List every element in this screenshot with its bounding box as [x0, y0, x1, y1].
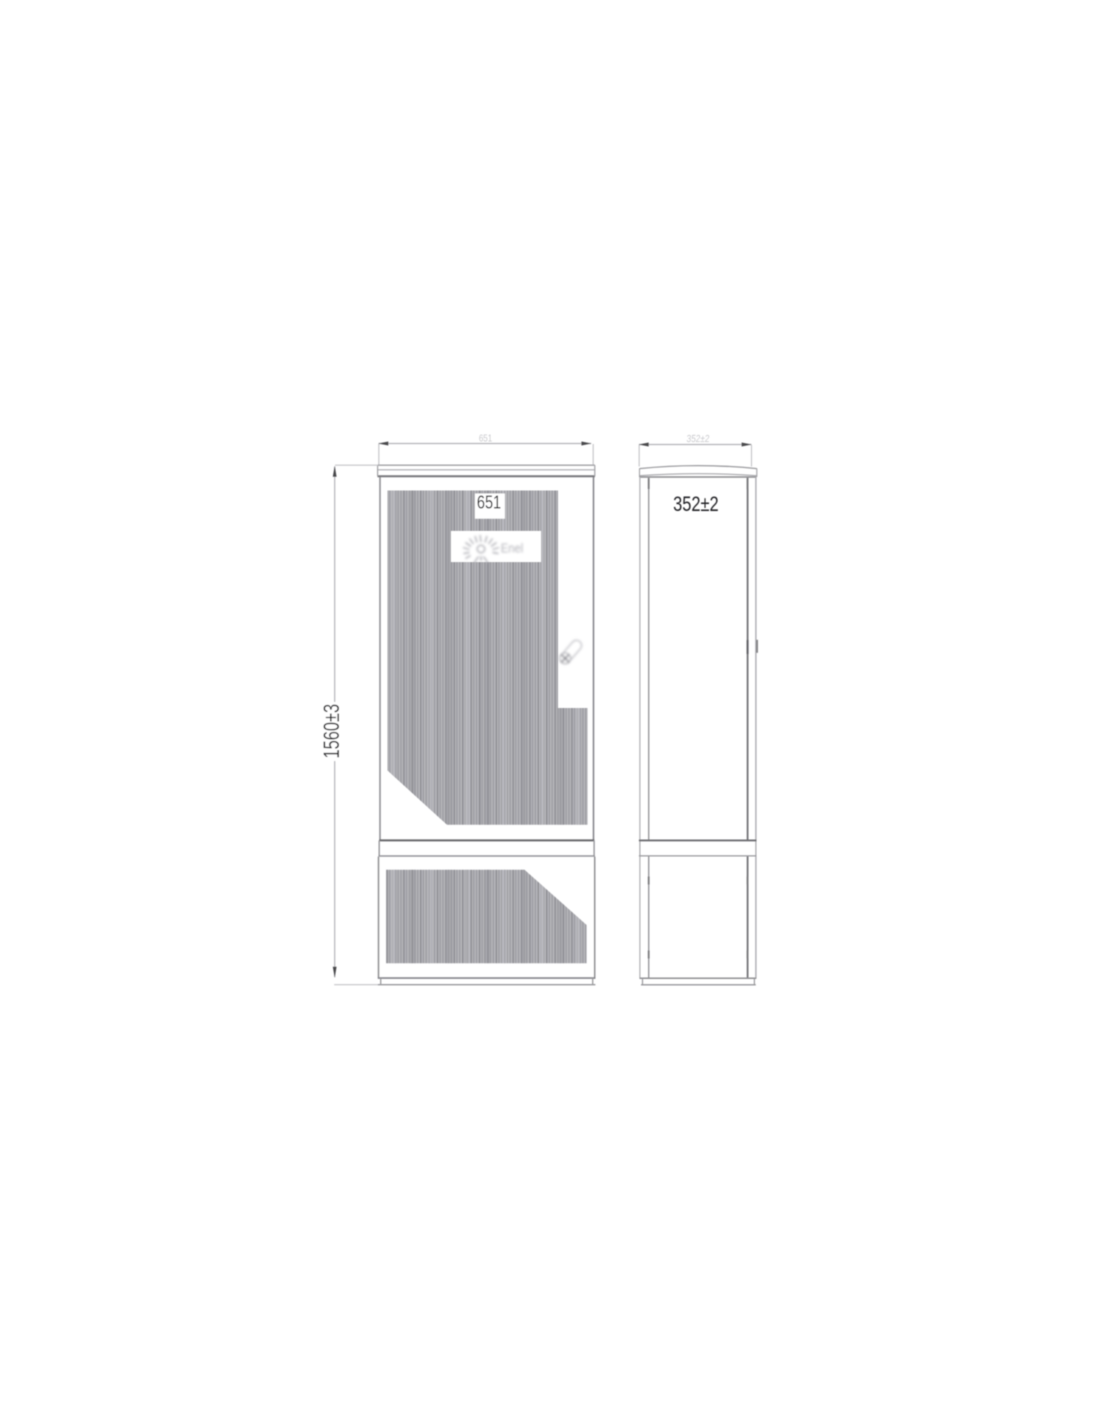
svg-text:1560±3: 1560±3: [320, 704, 345, 759]
svg-text:651: 651: [479, 433, 492, 444]
svg-text:Enel: Enel: [501, 541, 523, 556]
svg-text:352±2: 352±2: [686, 433, 710, 444]
svg-text:651: 651: [477, 492, 501, 513]
svg-text:352±2: 352±2: [673, 492, 719, 515]
